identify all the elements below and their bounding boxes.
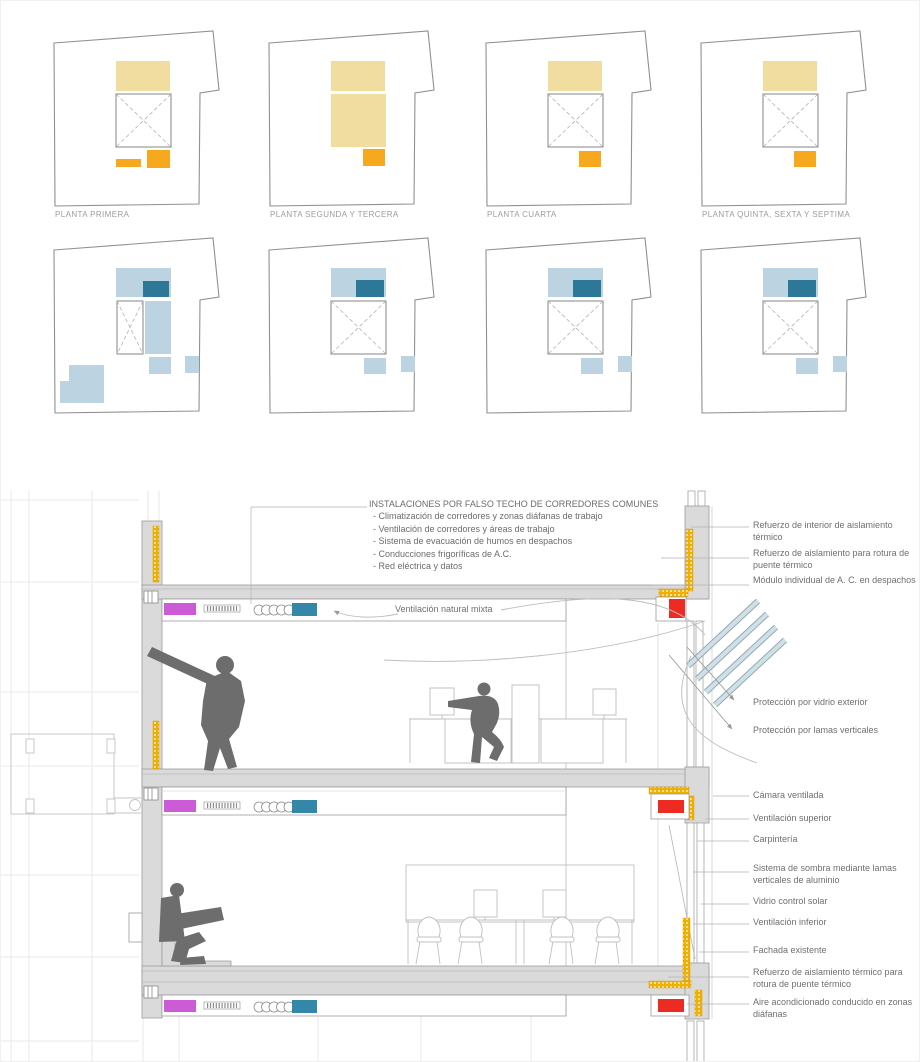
use-zone <box>763 61 817 91</box>
ventilation-zone-dark <box>356 280 384 297</box>
glazing-top-floor <box>687 621 694 767</box>
installations-note: INSTALACIONES POR FALSO TECHO DE CORREDO… <box>369 498 709 572</box>
ventilation-label: Ventilación natural mixta <box>395 604 493 614</box>
chair <box>458 917 483 964</box>
facade-annotation: Aire acondicionado conducido en zonas di… <box>753 997 919 1020</box>
facade-annotation: Ventilación superior <box>753 813 919 825</box>
facade-annotation: Vidrio control solar <box>753 896 919 908</box>
use-zone <box>331 94 386 147</box>
core-service-zone <box>363 149 385 166</box>
ventilation-zone <box>401 356 415 372</box>
facade-annotation: Protección por vidrio exterior <box>753 697 919 709</box>
floor-plan-planta-cuarta <box>486 31 651 206</box>
core-service-zone <box>579 151 601 167</box>
floor-plan-planta-primera <box>54 31 219 206</box>
installations-item: - Red eléctrica y datos <box>369 560 709 572</box>
duct-teal <box>292 1000 317 1013</box>
architecture-diagram-page: PLANTA PRIMERA PLANTA SEGUNDA Y TERCERA … <box>0 0 920 1062</box>
ventilation-zone <box>796 358 818 374</box>
facade-annotation: Cámara ventilada <box>753 790 919 802</box>
chair <box>549 917 574 964</box>
duct-magenta <box>164 1000 196 1012</box>
floor-plan-blue-3 <box>486 238 651 413</box>
parapet <box>129 913 142 942</box>
use-zone <box>116 61 170 91</box>
floor-plan-blue-4 <box>701 238 866 413</box>
ventilation-zone <box>185 356 199 373</box>
ventilation-zone-dark <box>573 280 601 297</box>
facade-annotation: Protección por lamas verticales <box>753 725 919 737</box>
structure <box>129 521 709 1018</box>
monitor <box>543 890 566 917</box>
ventilation-zone <box>581 358 603 374</box>
ventilation-zone <box>364 358 386 374</box>
glazing-middle-floor <box>697 823 704 963</box>
plan-label: PLANTA CUARTA <box>487 210 557 219</box>
glazing-ground <box>687 1021 694 1062</box>
use-zone <box>331 61 385 91</box>
installations-item: - Climatización de corredores y zonas di… <box>369 510 709 522</box>
slab-floor-bottom <box>142 966 709 995</box>
floor-plan-planta-quinta-sexta-septima <box>701 31 866 206</box>
facade-annotation: Carpintería <box>753 834 919 846</box>
ac-module-top <box>669 599 685 618</box>
floor-plans <box>1 1 920 488</box>
monitor <box>593 689 616 715</box>
ventilation-zone <box>149 357 171 374</box>
facade-annotation: Refuerzo de aislamiento térmico para rot… <box>753 967 919 990</box>
chair <box>416 917 441 964</box>
duct-teal <box>292 603 317 616</box>
floor-plan-blue-2 <box>269 238 434 413</box>
facade-annotation: Módulo individual de A. C. en despachos <box>753 575 919 587</box>
ventilation-zone-dark <box>143 281 169 297</box>
plan-label: PLANTA PRIMERA <box>55 210 129 219</box>
ventilation-zone <box>145 301 171 354</box>
slab-floor-middle <box>142 769 709 787</box>
facade-annotation: Sistema de sombra mediante lamas vertica… <box>753 863 919 886</box>
partition-lines <box>566 601 658 1015</box>
core-service-zone <box>794 151 816 167</box>
duct-magenta <box>164 603 196 615</box>
core-service-zone <box>116 159 141 167</box>
duct-teal <box>292 800 317 813</box>
installations-item: - Sistema de evacuación de humos en desp… <box>369 535 709 547</box>
installations-item: - Conducciones frigoríficas de A.C. <box>369 548 709 560</box>
use-zone <box>548 61 602 91</box>
duct-magenta <box>164 800 196 812</box>
chair <box>595 917 620 964</box>
ventilation-zone-dark <box>788 280 816 297</box>
monitor <box>474 890 497 917</box>
installations-title: INSTALACIONES POR FALSO TECHO DE CORREDO… <box>369 498 709 510</box>
facade-annotation: Ventilación inferior <box>753 917 919 929</box>
plan-label: PLANTA SEGUNDA Y TERCERA <box>270 210 399 219</box>
slab-floor-top <box>142 585 709 599</box>
facade-annotation: Refuerzo de aislamiento para rotura de p… <box>753 548 919 571</box>
ventilation-zone <box>833 356 847 372</box>
ac-module-middle <box>658 800 684 813</box>
installations-item: - Ventilación de corredores y áreas de t… <box>369 523 709 535</box>
glazing-ground <box>697 1021 704 1062</box>
cabinet <box>512 685 539 763</box>
facade-annotation: Fachada existente <box>753 945 919 957</box>
ventilation-zone <box>618 356 632 372</box>
ac-module-bottom <box>658 999 684 1012</box>
core-service-zone <box>147 150 170 168</box>
facade-annotation: Refuerzo de interior de aislamiento térm… <box>753 520 919 543</box>
furniture-middle <box>409 685 627 763</box>
plan-label: PLANTA QUINTA, SEXTA Y SEPTIMA <box>702 210 850 219</box>
furniture-bottom <box>406 865 634 964</box>
vertical-louvres <box>669 601 785 729</box>
adjacent-frame <box>11 734 141 814</box>
floor-plan-planta-segunda-tercera <box>269 31 434 206</box>
floor-plan-blue-1 <box>54 238 219 413</box>
